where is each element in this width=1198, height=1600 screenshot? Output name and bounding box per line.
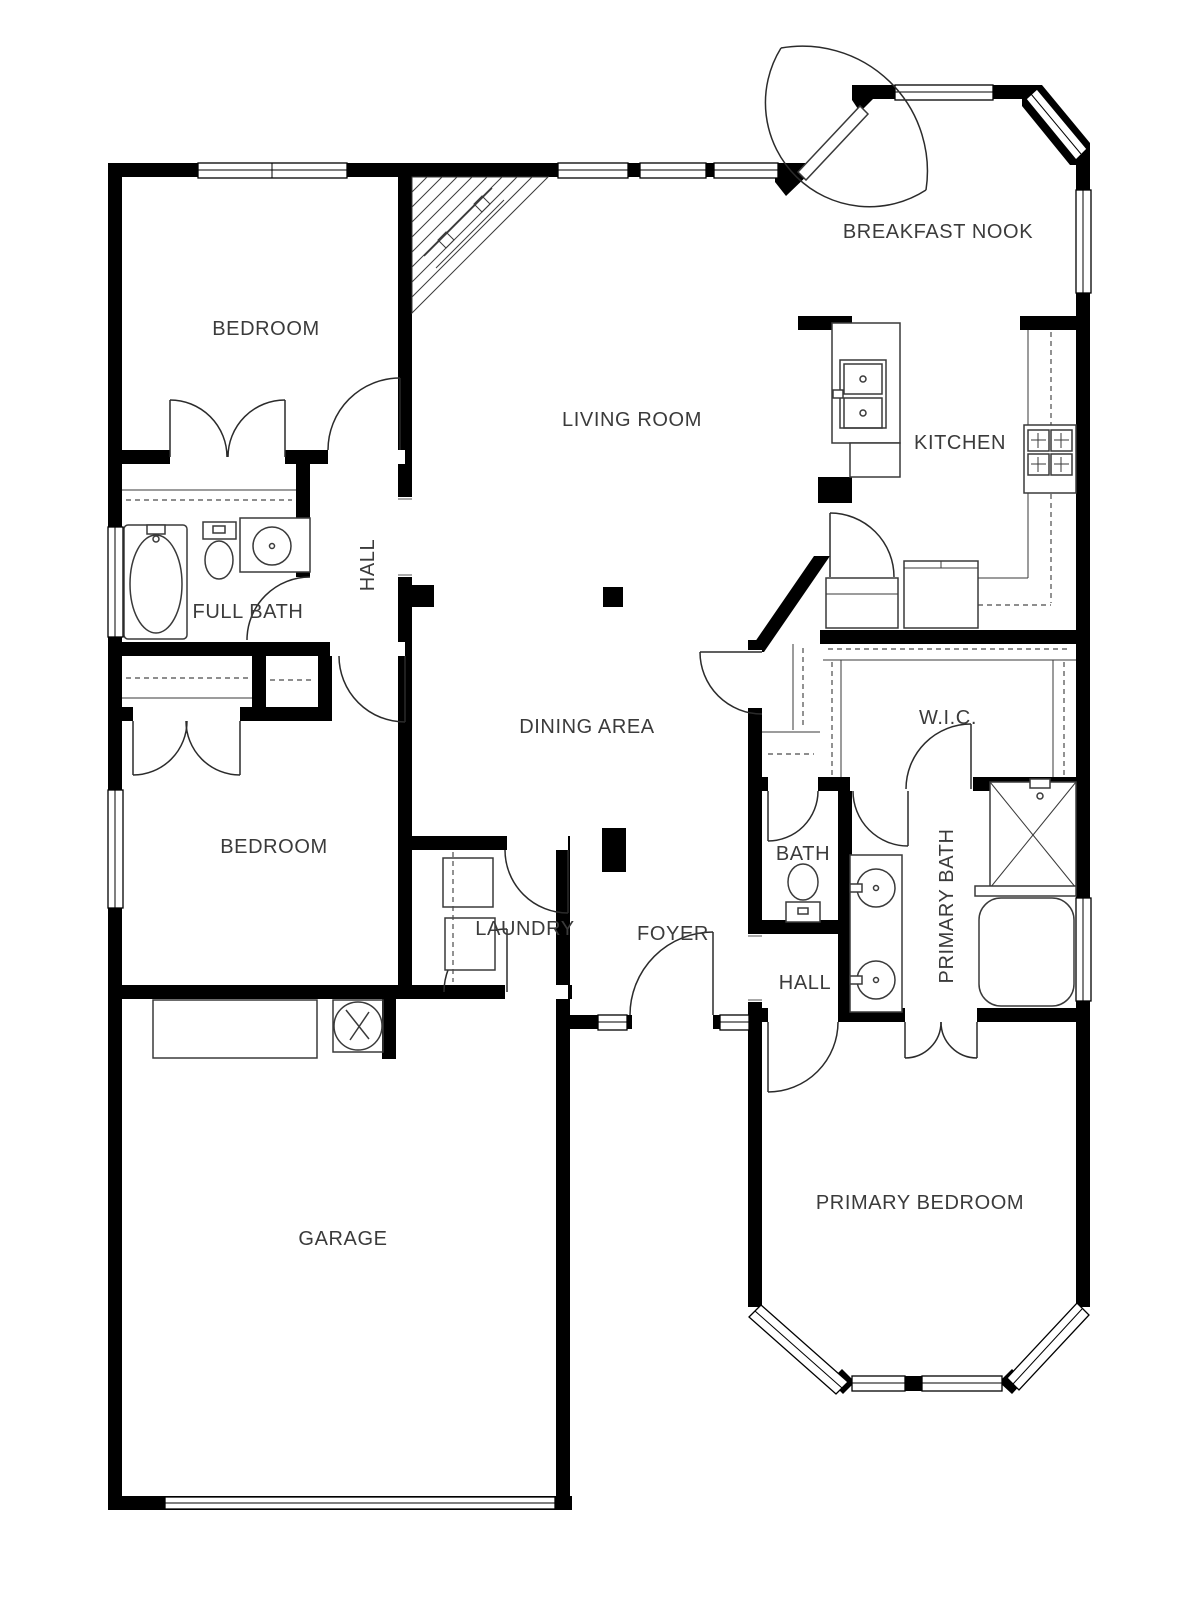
- stove: [1024, 425, 1076, 493]
- room-label-bedroom-north: BEDROOM: [212, 318, 320, 340]
- floor-plan-svg: BREAKFAST NOOK BEDROOM LIVING ROOM KITCH…: [0, 0, 1198, 1600]
- bedroom-west-closet-doors: [133, 721, 240, 775]
- washer: [443, 858, 493, 907]
- room-label-bedroom-west: BEDROOM: [220, 836, 328, 858]
- fireplace: [412, 177, 548, 313]
- stub-nook-door-ne: [852, 85, 876, 112]
- room-label-laundry: LAUNDRY: [475, 918, 574, 940]
- bedroom-north-window: [198, 163, 347, 178]
- room-label-bath: BATH: [776, 843, 830, 865]
- primary-bedroom-door: [768, 1022, 838, 1092]
- wall-kitchen-stub-east: [1020, 316, 1076, 330]
- room-label-garage: GARAGE: [298, 1228, 387, 1250]
- garage-workbench: [153, 1000, 317, 1058]
- kitchen-cabinet: [826, 578, 898, 628]
- primary-bedroom-closet-doors: [905, 1022, 977, 1058]
- post-living-column: [603, 587, 623, 607]
- bedroom-north-door: [328, 378, 400, 450]
- closet-shelves-bedroom-north: [122, 490, 296, 500]
- walls-layer: [108, 85, 1090, 1510]
- bathtub-primary: [975, 886, 1076, 1006]
- room-label-living-room: LIVING ROOM: [562, 409, 702, 431]
- bath-door: [768, 791, 818, 841]
- shower: [990, 779, 1076, 888]
- room-label-primary-bath: PRIMARY BATH: [936, 828, 958, 983]
- room-label-wic: W.I.C.: [919, 707, 977, 729]
- floor-plan-page: BREAKFAST NOOK BEDROOM LIVING ROOM KITCH…: [0, 0, 1198, 1600]
- full-bath-window: [108, 527, 123, 637]
- kitchen-pantry-door: [830, 513, 894, 577]
- bedroom-north-closet-doors: [170, 400, 285, 457]
- post-bay-center: [905, 1376, 922, 1391]
- stub-kitchen-counter-end: [818, 477, 852, 503]
- room-label-dining-area: DINING AREA: [519, 716, 655, 738]
- wall-dining-diagonal: [748, 556, 830, 652]
- room-label-full-bath: FULL BATH: [193, 601, 304, 623]
- room-label-breakfast-nook: BREAKFAST NOOK: [843, 221, 1033, 243]
- bedroom-west-door: [339, 656, 405, 722]
- linen-closet-shelves: [762, 644, 820, 754]
- wall-wic-north: [820, 630, 1076, 644]
- refrigerator: [904, 561, 978, 628]
- primary-bath-door: [853, 791, 908, 846]
- toilet-bath: [786, 864, 820, 922]
- windows-layer: [108, 85, 1091, 1509]
- room-label-hall-north: HALL: [357, 539, 379, 591]
- room-label-foyer: FOYER: [637, 923, 709, 945]
- stub-garage-waterheater: [382, 997, 396, 1059]
- wall-garage-north: [108, 985, 572, 999]
- kitchen-island: [832, 323, 900, 477]
- living-room-windows: [558, 163, 778, 178]
- post-hall-end: [412, 585, 434, 607]
- closet-shelves-bedroom-west: [122, 678, 314, 698]
- room-label-primary-bedroom: PRIMARY BEDROOM: [816, 1192, 1024, 1214]
- bedroom-west-window: [108, 790, 123, 908]
- room-label-hall-primary: HALL: [779, 972, 831, 994]
- garage-door: [165, 1497, 555, 1509]
- labels-layer: BREAKFAST NOOK BEDROOM LIVING ROOM KITCH…: [193, 221, 1034, 1250]
- wall-right: [1076, 160, 1090, 1307]
- water-heater: [333, 1000, 383, 1052]
- sink-full-bath: [240, 518, 310, 572]
- bathtub-full-bath: [124, 525, 187, 639]
- toilet-full-bath: [203, 522, 236, 579]
- room-label-kitchen: KITCHEN: [914, 432, 1006, 454]
- stub-dining-foyer: [602, 828, 626, 872]
- vanity-primary-bath: [850, 855, 902, 1012]
- primary-bath-window: [1076, 898, 1091, 1001]
